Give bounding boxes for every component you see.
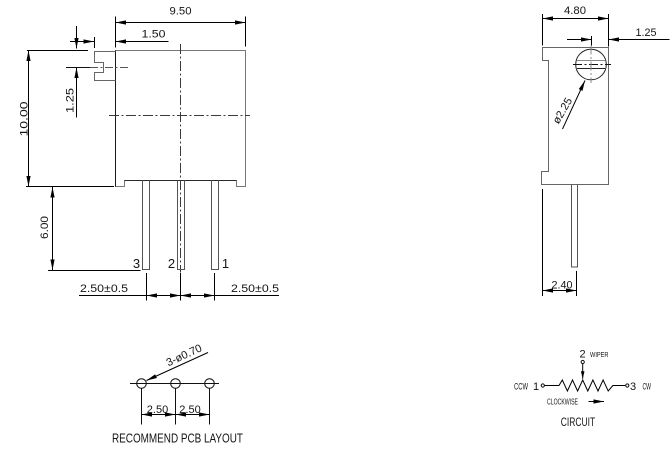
- svg-text:10.00: 10.00: [19, 102, 31, 137]
- svg-text:4.80: 4.80: [564, 5, 586, 17]
- svg-text:CLOCKWISE: CLOCKWISE: [547, 397, 578, 407]
- svg-text:3-ø0.70: 3-ø0.70: [165, 342, 204, 369]
- svg-text:9.50: 9.50: [170, 6, 192, 18]
- svg-text:CIRCUIT: CIRCUIT: [561, 415, 596, 429]
- svg-text:WIPER: WIPER: [590, 350, 609, 359]
- svg-text:1: 1: [222, 256, 229, 271]
- svg-text:CCW: CCW: [514, 382, 528, 392]
- svg-text:1: 1: [533, 381, 539, 393]
- svg-text:ø2.25: ø2.25: [551, 96, 575, 126]
- svg-text:1.25: 1.25: [636, 27, 657, 39]
- svg-text:1.50: 1.50: [142, 29, 166, 41]
- svg-text:3: 3: [133, 256, 140, 271]
- svg-text:2.50±0.5: 2.50±0.5: [231, 283, 279, 295]
- svg-text:RECOMMEND PCB LAYOUT: RECOMMEND PCB LAYOUT: [112, 432, 243, 446]
- svg-text:2.40: 2.40: [552, 280, 573, 292]
- svg-text:1.25: 1.25: [65, 88, 77, 113]
- svg-text:2.50: 2.50: [147, 404, 168, 416]
- svg-text:2: 2: [168, 256, 175, 271]
- svg-text:2.50: 2.50: [179, 404, 200, 416]
- svg-text:CW: CW: [643, 382, 652, 392]
- svg-text:2.50±0.5: 2.50±0.5: [80, 283, 128, 295]
- svg-text:6.00: 6.00: [39, 216, 51, 239]
- svg-text:3: 3: [630, 381, 636, 393]
- svg-text:2: 2: [579, 349, 585, 361]
